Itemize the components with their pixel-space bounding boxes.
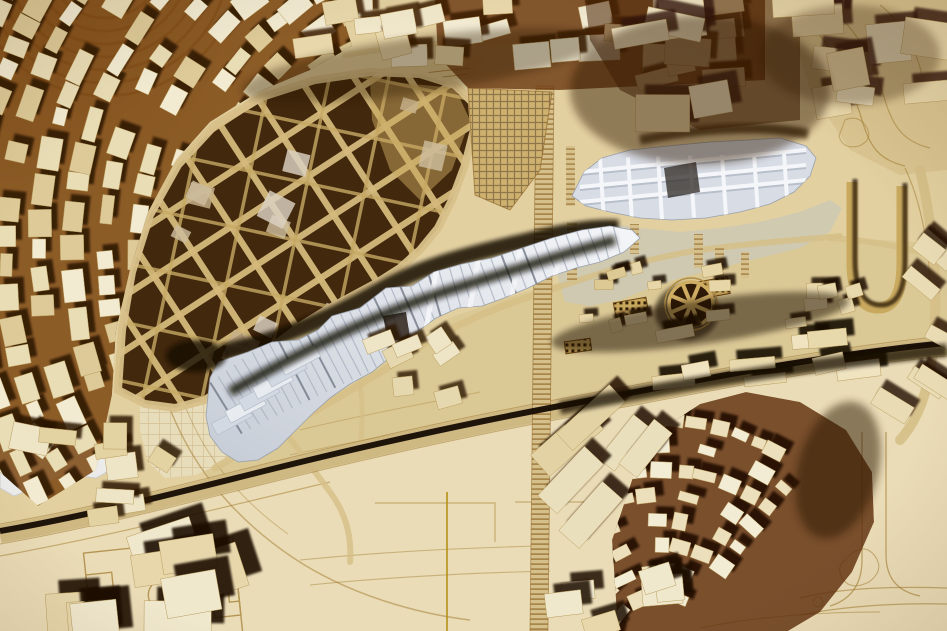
architectural-model-photo — [0, 0, 947, 631]
vignette — [0, 0, 947, 631]
vignette-layer — [0, 0, 947, 631]
scene-svg — [0, 0, 947, 631]
